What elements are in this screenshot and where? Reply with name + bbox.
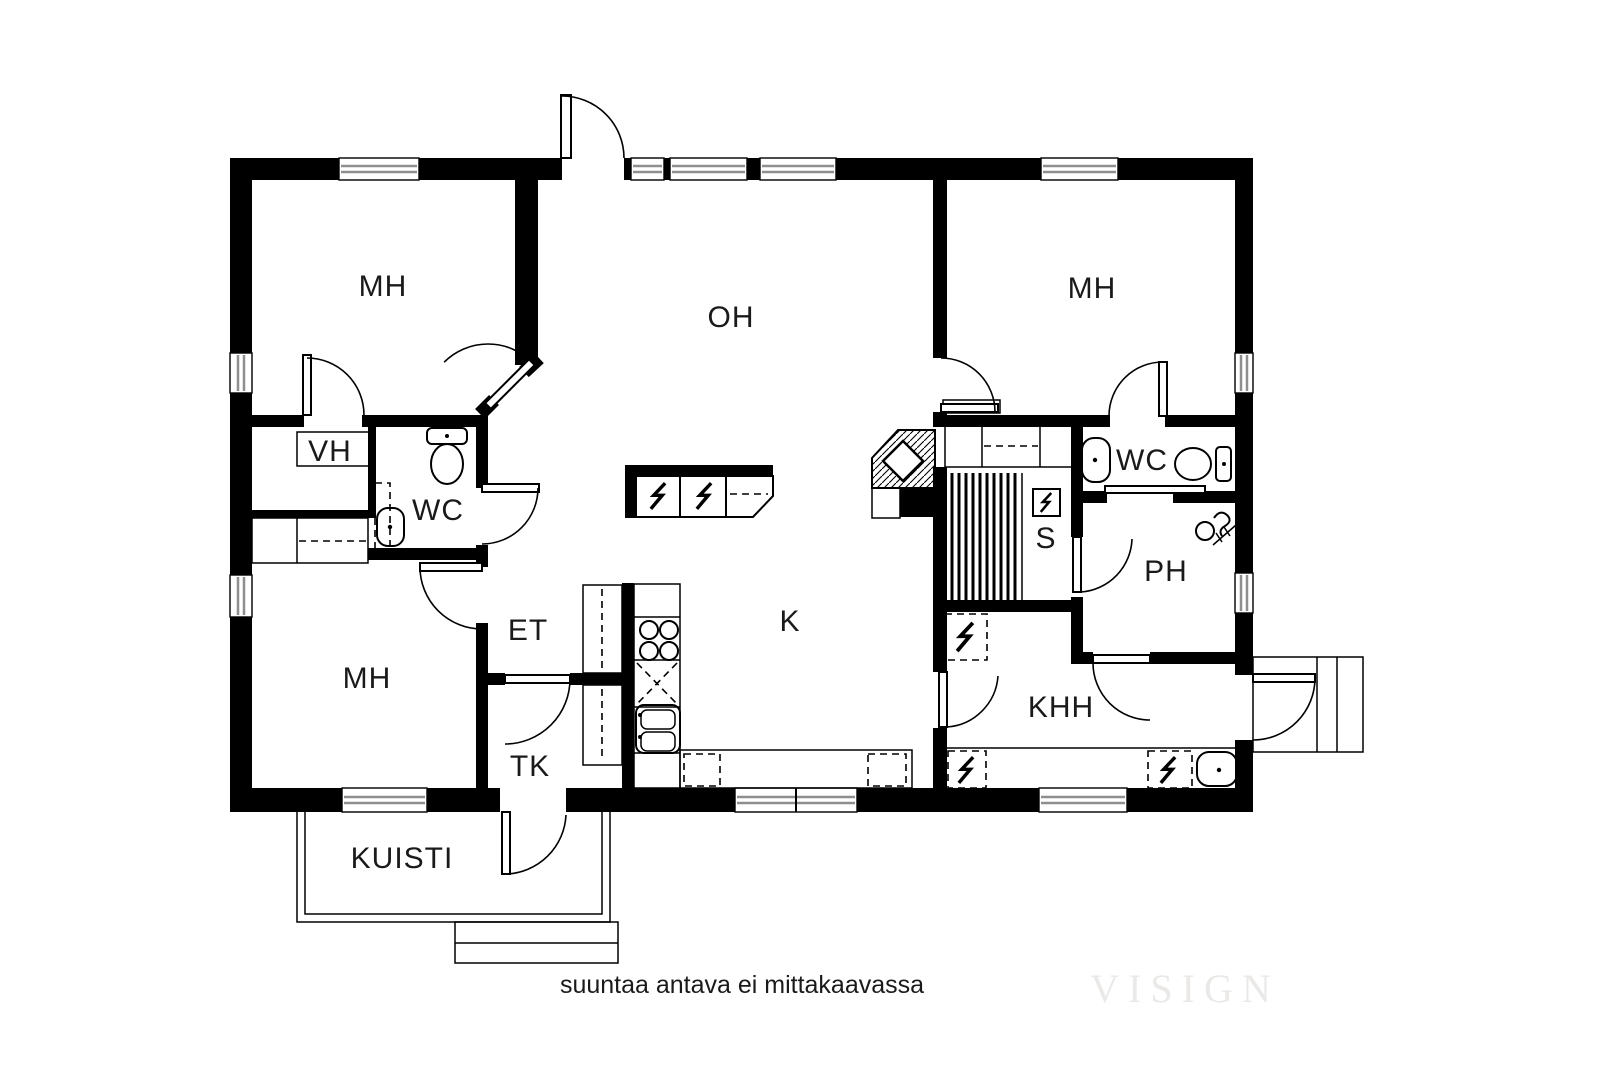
window [342,788,427,812]
doors [303,95,1315,874]
window [230,353,252,393]
sink-icon [1197,752,1237,786]
floor-plan-drawing: MH OH MH VH WC ET MH TK K S WC PH KHH KU… [0,0,1600,1067]
windows [230,158,1253,812]
room-label-oh: OH [708,301,755,334]
toilet-icon [427,428,467,484]
stove-icon [640,621,678,660]
room-label-khh: KHH [1028,691,1094,724]
sauna-stove-icon [1033,489,1060,516]
appliance-reservation-icon [697,483,711,509]
shower-icon [1196,513,1236,545]
door [1073,537,1132,592]
door [1109,362,1167,416]
sink-icon [1082,438,1110,482]
door [303,355,364,415]
door [502,812,566,874]
appliance-reservation-icon [651,483,665,509]
room-label-s: S [1035,522,1056,555]
wardrobe [583,585,622,673]
room-labels: MH OH MH VH WC ET MH TK K S WC PH KHH KU… [308,270,1188,875]
toilet-icon [1175,447,1231,481]
kitchen-counter [634,584,912,788]
room-label-kuisti: KUISTI [351,842,454,875]
appliance-reservation-icon [1148,751,1192,788]
room-label-mh-top-left: MH [359,270,408,303]
floor-plan-page: MH OH MH VH WC ET MH TK K S WC PH KHH KU… [0,0,1600,1067]
fireplace [872,430,935,518]
door [1093,655,1150,720]
door [941,358,998,412]
porch-kuisti [297,812,618,963]
room-label-ph: PH [1144,555,1188,588]
window [339,158,419,180]
room-label-vh: VH [308,435,352,468]
kitchen-sink-icon [636,705,680,753]
room-label-k: K [779,605,800,638]
room-label-wc-right: WC [1116,444,1168,477]
door [482,484,539,544]
window [1039,788,1127,812]
window [230,575,252,617]
wardrobe [252,518,368,563]
wardrobe [945,425,1073,467]
room-label-et: ET [508,614,548,647]
appliance-reservation-icon [948,751,986,788]
door [420,563,482,629]
window [735,788,857,812]
wardrobe [583,685,622,765]
kitchen-island [625,465,773,518]
room-label-wc-left: WC [412,494,464,527]
window [1235,353,1253,393]
window [1041,158,1118,180]
sauna-benches [952,473,1022,605]
appliance-reservation-icon [945,614,987,660]
door [939,672,998,727]
door [1253,674,1315,740]
exterior-walls [230,158,1253,812]
room-label-mh-bottom-left: MH [343,662,392,695]
room-label-tk: TK [510,750,550,783]
window [760,158,836,180]
window [1235,573,1253,613]
watermark: VISIGN [1090,966,1280,1011]
door [505,675,570,744]
window [631,158,664,180]
door [561,95,624,158]
dishwasher-reservation-icon [637,663,677,704]
room-label-mh-right: MH [1068,272,1117,305]
window [670,158,747,180]
disclaimer-note: suuntaa antava ei mittakaavassa [560,971,924,999]
